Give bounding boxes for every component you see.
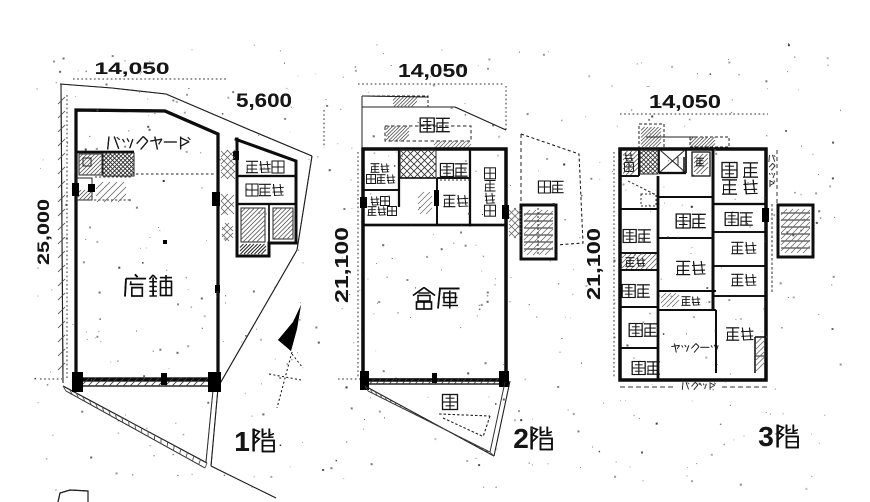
svg-text:14,050: 14,050 <box>398 61 468 81</box>
svg-text:3: 3 <box>758 421 774 452</box>
svg-text:14,050: 14,050 <box>95 59 170 78</box>
svg-text:5,600: 5,600 <box>236 91 292 112</box>
svg-text:25,000: 25,000 <box>34 199 53 265</box>
svg-text:21,100: 21,100 <box>584 228 604 300</box>
svg-text:2: 2 <box>513 423 529 454</box>
svg-text:21,100: 21,100 <box>332 227 352 303</box>
svg-text:14,050: 14,050 <box>649 92 721 112</box>
svg-text:1: 1 <box>234 426 250 457</box>
